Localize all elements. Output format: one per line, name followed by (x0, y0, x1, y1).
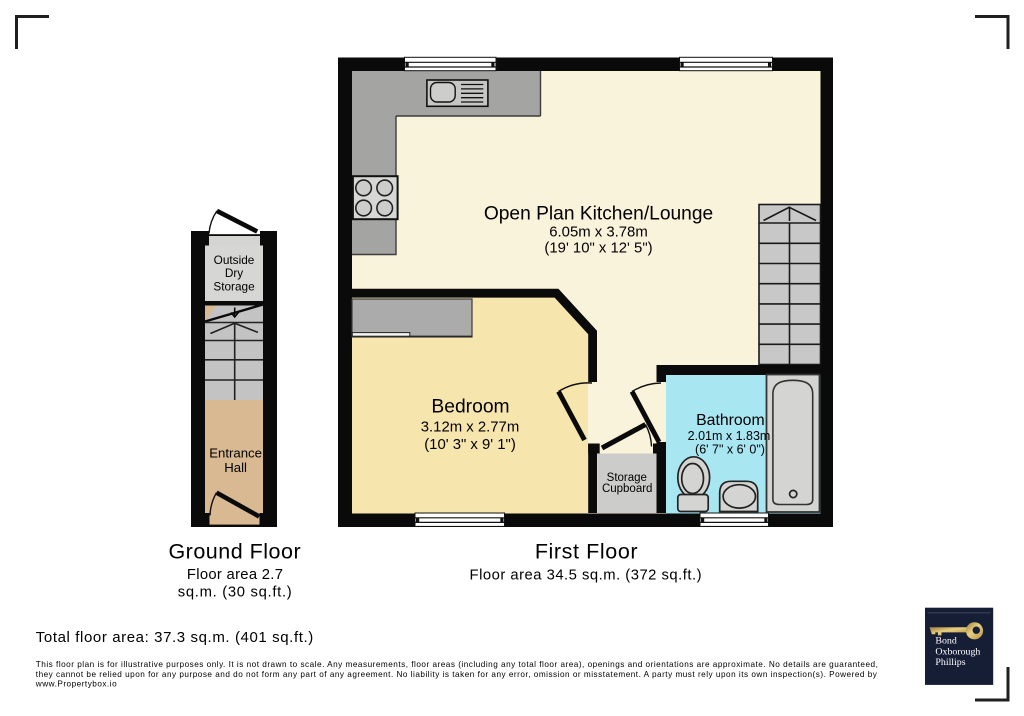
svg-text:3.12m x 2.77m: 3.12m x 2.77m (421, 420, 520, 436)
svg-text:Cupboard: Cupboard (602, 483, 653, 495)
svg-text:Floor area 34.5 sq.m. (372 sq.: Floor area 34.5 sq.m. (372 sq.ft.) (470, 568, 702, 584)
svg-text:Hall: Hall (224, 460, 247, 475)
svg-text:First Floor: First Floor (535, 539, 638, 563)
svg-text:2.01m x 1.83m: 2.01m x 1.83m (688, 429, 771, 443)
svg-text:Entrance: Entrance (209, 445, 262, 460)
svg-text:Outside: Outside (214, 253, 255, 267)
svg-text:they cannot be relied upon for: they cannot be relied upon for any purpo… (36, 670, 878, 679)
svg-text:6.05m x 3.78m: 6.05m x 3.78m (549, 224, 648, 240)
svg-text:sq.m. (30 sq.ft.): sq.m. (30 sq.ft.) (178, 585, 293, 601)
svg-text:Ground Floor: Ground Floor (168, 540, 301, 564)
svg-text:Phillips: Phillips (935, 657, 965, 668)
svg-text:Storage: Storage (213, 280, 255, 294)
svg-text:Dry: Dry (225, 266, 243, 280)
svg-text:Floor area 2.7: Floor area 2.7 (187, 567, 283, 583)
svg-text:Bond: Bond (935, 636, 956, 647)
svg-text:Open Plan Kitchen/Lounge: Open Plan Kitchen/Lounge (484, 204, 713, 225)
svg-text:(19' 10" x 12' 5"): (19' 10" x 12' 5") (544, 241, 652, 257)
svg-text:(6' 7" x 6' 0"): (6' 7" x 6' 0") (695, 443, 765, 457)
svg-text:www.Propertybox.io: www.Propertybox.io (35, 680, 117, 689)
svg-text:This floor plan is for illustr: This floor plan is for illustrative purp… (36, 660, 879, 669)
svg-text:Bathroom: Bathroom (696, 412, 765, 429)
svg-text:Bedroom: Bedroom (431, 396, 509, 417)
svg-text:Storage: Storage (607, 472, 647, 484)
svg-text:Total floor area: 37.3 sq.m. (: Total floor area: 37.3 sq.m. (401 sq.ft.… (36, 629, 314, 646)
svg-text:(10' 3" x 9' 1"): (10' 3" x 9' 1") (424, 437, 516, 453)
